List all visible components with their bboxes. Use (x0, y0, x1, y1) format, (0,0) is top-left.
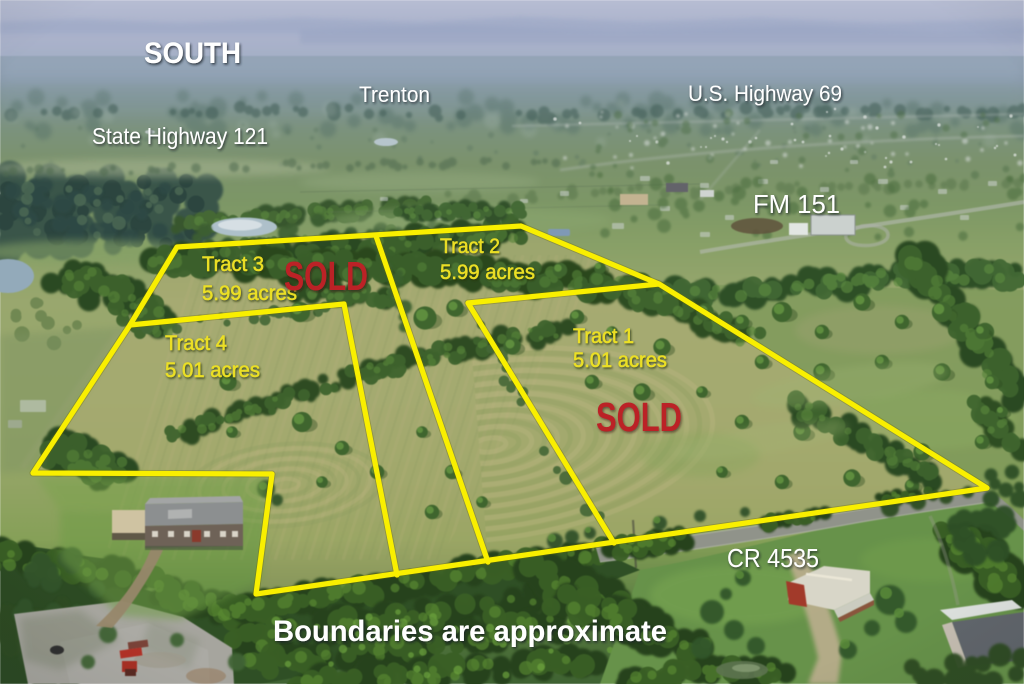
svg-text:SOLD: SOLD (596, 394, 682, 440)
svg-text:U.S. Highway 69: U.S. Highway 69 (688, 81, 842, 106)
svg-text:5.99 acres: 5.99 acres (440, 261, 535, 284)
svg-text:SOLD: SOLD (284, 253, 368, 299)
svg-text:Trenton: Trenton (359, 82, 430, 107)
svg-text:Tract 1: Tract 1 (573, 325, 634, 348)
svg-text:Boundaries are approximate: Boundaries are approximate (273, 615, 667, 648)
svg-text:State Highway 121: State Highway 121 (92, 123, 268, 149)
svg-text:Tract 2: Tract 2 (440, 235, 500, 258)
svg-text:5.01 acres: 5.01 acres (165, 359, 260, 382)
svg-text:5.01 acres: 5.01 acres (573, 349, 667, 372)
svg-text:CR 4535: CR 4535 (727, 543, 819, 573)
svg-text:Tract 3: Tract 3 (202, 253, 264, 276)
svg-text:SOUTH: SOUTH (144, 37, 241, 70)
svg-text:FM 151: FM 151 (753, 189, 840, 219)
svg-text:5.99 acres: 5.99 acres (202, 282, 297, 305)
svg-text:Tract 4: Tract 4 (165, 332, 227, 355)
